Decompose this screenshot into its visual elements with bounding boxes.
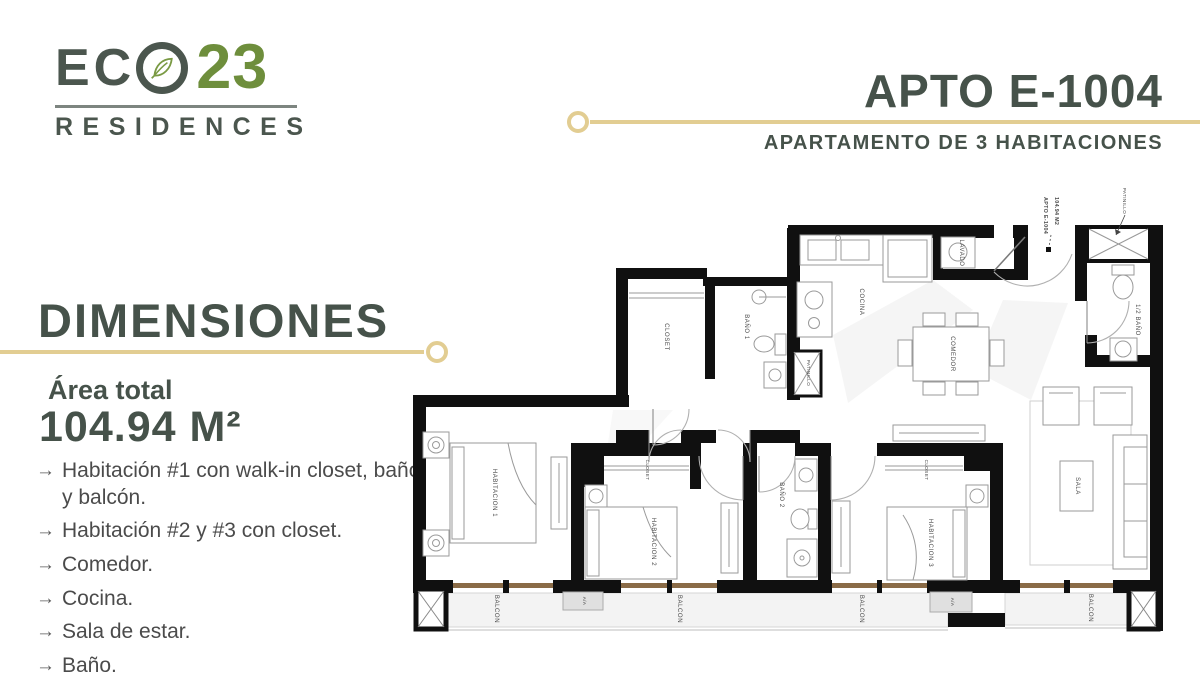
- plan-label-sala: SALA: [1074, 477, 1080, 495]
- balcony-floor-left: [445, 593, 948, 627]
- toilet: [791, 509, 809, 529]
- gold-accent-line-right: [590, 120, 1200, 124]
- area-total-label: Área total: [48, 375, 173, 406]
- chair: [923, 382, 945, 395]
- toilet-tank: [1112, 265, 1134, 275]
- list-item: →Sala de estar.: [36, 619, 431, 646]
- chair: [956, 382, 978, 395]
- chair: [956, 313, 978, 326]
- leaf-icon: [149, 55, 175, 81]
- arrow-bullet-icon: →: [36, 619, 55, 646]
- feature-text: Baño.: [62, 653, 117, 680]
- chair: [923, 313, 945, 326]
- arrow-bullet-icon: →: [36, 518, 55, 545]
- plan-label-bano2: BAÑO 2: [778, 482, 785, 508]
- page-subtitle: APARTAMENTO DE 3 HABITACIONES: [764, 132, 1163, 155]
- logo-o-ring: [136, 42, 188, 94]
- floor-plan: APTO E-1004 104.94 M2 PATINILLO PATINILL…: [413, 185, 1163, 655]
- toilet-tank: [775, 334, 786, 355]
- plan-label-aa-2: A/A: [950, 598, 955, 607]
- toilet: [754, 336, 774, 352]
- plan-label-balcon-4: BALCON: [1087, 594, 1093, 622]
- plan-label-comedor: COMEDOR: [949, 336, 955, 372]
- plan-label-balcon-2: BALCON: [676, 595, 682, 623]
- feature-text: Habitación #1 con walk-in closet, baño y…: [62, 458, 431, 511]
- gold-accent-circle-right: [567, 111, 589, 133]
- page-title: APTO E-1004: [864, 64, 1163, 118]
- plan-label-patinillo-small: PATINILLO: [806, 360, 811, 386]
- area-total-value: 104.94 M²: [39, 403, 242, 452]
- plan-label-apto-area: 104.94 M2: [1053, 197, 1059, 225]
- logo-text-23: 23: [196, 36, 268, 99]
- list-item: →Comedor.: [36, 552, 431, 579]
- list-item: →Habitación #2 y #3 con closet.: [36, 518, 431, 545]
- feature-text: Habitación #2 y #3 con closet.: [62, 518, 342, 545]
- arrow-bullet-icon: →: [36, 458, 55, 485]
- logo-divider: [55, 105, 297, 108]
- plan-label-habitacion3: HABITACION 3: [927, 519, 933, 567]
- plan-label-closet2: CLOSET: [645, 460, 650, 481]
- feature-text: Comedor.: [62, 552, 153, 579]
- chair: [990, 340, 1004, 366]
- plan-label-habitacion1: HABITACION 1: [491, 469, 497, 517]
- dimensions-heading: DIMENSIONES: [38, 293, 389, 348]
- logo-text-ec: EC: [55, 42, 135, 94]
- brand-logo: EC 23 RESIDENCES: [55, 36, 305, 142]
- plan-label-closet1: CLOSET: [663, 323, 669, 351]
- plan-label-aa-1: A/A: [582, 597, 587, 606]
- plan-label-habitacion2: HABITACION 2: [650, 518, 656, 566]
- feature-text: Sala de estar.: [62, 619, 190, 646]
- balcony-floor-right: [1005, 593, 1129, 625]
- list-item: →Baño.: [36, 653, 431, 680]
- arrow-bullet-icon: →: [36, 586, 55, 613]
- plan-label-closet3: CLOSET: [924, 460, 929, 481]
- gold-accent-line-left: [0, 350, 424, 354]
- plan-label-lavado: LAVADO: [958, 239, 964, 266]
- arrow-bullet-icon: →: [36, 552, 55, 579]
- furniture: [423, 235, 1147, 580]
- plan-label-balcon-3: BALCON: [858, 595, 864, 623]
- plan-label-cocina: COCINA: [858, 289, 864, 316]
- chair: [898, 340, 912, 366]
- plan-label-patinillo-top: PATINILLO: [1122, 188, 1127, 214]
- plan-label-half-bano: 1/2 BAÑO: [1134, 304, 1141, 336]
- feature-list: →Habitación #1 con walk-in closet, baño …: [36, 458, 431, 687]
- logo-text-residences: RESIDENCES: [55, 113, 305, 142]
- plan-label-bano1: BAÑO 1: [743, 314, 750, 340]
- list-item: →Habitación #1 con walk-in closet, baño …: [36, 458, 431, 511]
- balcony-column-right: [1129, 589, 1158, 629]
- logo-row: EC 23: [55, 36, 305, 99]
- feature-text: Cocina.: [62, 586, 133, 613]
- toilet: [1113, 275, 1133, 299]
- arrow-bullet-icon: →: [36, 653, 55, 680]
- plan-label-apto: APTO E-1004: [1042, 197, 1048, 234]
- list-item: →Cocina.: [36, 586, 431, 613]
- plan-label-balcon-1: BALCON: [493, 595, 499, 623]
- balcony-column-left: [416, 589, 446, 629]
